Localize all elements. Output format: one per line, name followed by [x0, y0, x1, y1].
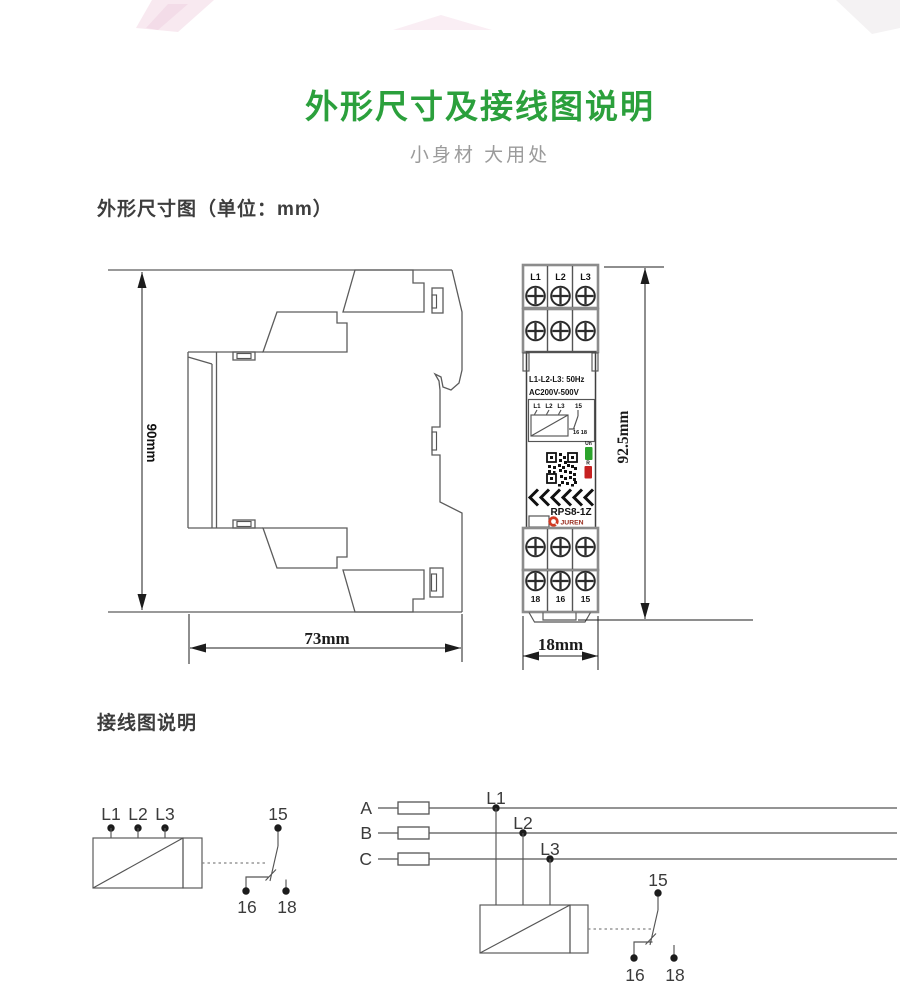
deco-shape	[836, 0, 900, 34]
wiring-diagram-simple: L1 L2 L3 15 16 18	[93, 804, 297, 917]
fuse-icon	[398, 827, 429, 839]
screw-terminal-icon	[551, 538, 570, 557]
mini-label: 15	[575, 403, 582, 410]
arrow-up-icon	[138, 272, 147, 288]
mini-label: 16 18	[573, 430, 587, 436]
mini-device-diagonal	[531, 415, 568, 436]
screw-terminal-icon	[526, 572, 545, 591]
input-label: L2	[128, 804, 147, 824]
junction-dot	[654, 889, 661, 896]
label-window	[529, 516, 549, 527]
side-bottom-wedge	[263, 528, 347, 568]
junction-dot	[242, 887, 249, 894]
device-mini-schematic: L1 L2 L3 15 16 18	[529, 400, 595, 442]
phase-lines	[378, 808, 897, 859]
contact-label-18: 18	[665, 965, 684, 985]
phase-label: A	[360, 798, 372, 818]
chevron-marks	[530, 490, 593, 506]
phase-label: B	[360, 823, 372, 843]
side-top-wedge	[263, 312, 347, 352]
arrow-left-icon	[523, 652, 539, 661]
led-red	[585, 466, 593, 479]
contact-label-16: 16	[237, 897, 256, 917]
contact-label-15: 15	[648, 870, 667, 890]
arrow-left-icon	[190, 644, 206, 653]
front-view-drawing: L1 L2 L3 L1-L2-L3: 50Hz AC200V-500V L1 L…	[523, 265, 598, 622]
technical-drawing-canvas: 90mm 73mm L1 L2 L3 L1-L2-L3: 50Hz	[0, 0, 900, 1001]
mini-label: L1	[533, 403, 541, 410]
contact-label-15: 15	[268, 804, 287, 824]
screw-terminal-icon	[576, 287, 595, 306]
side-bottom-cover	[343, 570, 424, 612]
mini-label: L2	[545, 403, 553, 410]
terminal-label: L2	[555, 272, 566, 282]
din-clip-slot	[432, 432, 437, 450]
brand-name: JUREN	[561, 520, 584, 527]
screw-terminal-icon	[576, 322, 595, 341]
contact-label-18: 18	[277, 897, 296, 917]
mini-relay-contact	[569, 410, 578, 429]
arrow-right-icon	[445, 644, 461, 653]
front-width-dimension-label: 18mm	[538, 635, 583, 654]
relay-output-section	[570, 905, 588, 953]
product-dimension-page: 外形尺寸及接线图说明 小身材 大用处 外形尺寸图（单位：mm） 接线图说明	[0, 0, 900, 1001]
junction-dot	[282, 887, 289, 894]
side-view-drawing	[108, 270, 462, 612]
front-height-dimension-lines	[578, 267, 753, 620]
contact-lines	[246, 832, 286, 892]
side-front-face	[188, 352, 263, 528]
side-top-cover	[343, 270, 424, 312]
front-height-dimension-label: 92.5mm	[615, 410, 632, 463]
relay-contact-symbol: 15 16 18	[625, 870, 684, 985]
junction-dot	[630, 954, 637, 961]
rating-text: L1-L2-L3: 50Hz	[529, 375, 585, 384]
fuse-icon	[398, 802, 429, 814]
screw-terminal-icon	[576, 572, 595, 591]
screw-terminal-icon	[576, 538, 595, 557]
back-slot-top	[432, 288, 443, 313]
screw-terminal-icon	[551, 572, 570, 591]
phase-label: C	[359, 849, 372, 869]
height-dimension-label: 90mm	[144, 423, 159, 462]
junction-dot	[274, 824, 281, 831]
screw-terminal-icon	[551, 322, 570, 341]
relay-contact-symbol: 15 16 18	[237, 804, 296, 917]
top-decoration	[136, 0, 900, 34]
terminal-label: 16	[556, 594, 566, 604]
screw-terminal-icon	[526, 287, 545, 306]
terminal-label: L1	[530, 272, 541, 282]
width-dimension-label: 73mm	[304, 629, 349, 648]
model-label: RPS8-1Z	[550, 507, 591, 518]
front-clip-tab-bottom-inner	[237, 522, 251, 527]
screw-terminal-icon	[551, 287, 570, 306]
contact-label-16: 16	[625, 965, 644, 985]
mini-label: L3	[557, 403, 565, 410]
wiring-diagram-three-phase: A B C L1 L2 L3 15 16	[359, 788, 897, 985]
mini-input-arrows	[535, 410, 562, 415]
rating-text: AC200V-500V	[529, 388, 580, 397]
qr-code	[547, 453, 577, 487]
relay-output-section	[183, 838, 202, 888]
terminal-label: 15	[581, 594, 591, 604]
front-clip-tab-top-inner	[237, 354, 251, 359]
led-r-label: R	[586, 461, 590, 467]
arrow-right-icon	[582, 652, 598, 661]
led-un-label: Un	[585, 441, 592, 447]
led-green	[585, 447, 593, 460]
input-leads	[111, 828, 165, 838]
terminal-label: 18	[531, 594, 541, 604]
arrow-down-icon	[138, 594, 147, 610]
input-label: L3	[155, 804, 174, 824]
contact-lines	[634, 897, 674, 959]
screw-terminal-icon	[526, 538, 545, 557]
screw-terminal-icon	[526, 322, 545, 341]
arrow-down-icon	[641, 603, 650, 619]
arrow-up-icon	[641, 268, 650, 284]
input-label: L1	[101, 804, 120, 824]
back-slot-bottom-inner	[432, 574, 437, 591]
deco-shape	[393, 15, 492, 30]
device-diagonal	[93, 838, 183, 888]
fuse-icon	[398, 853, 429, 865]
back-slot-top-inner	[432, 295, 437, 308]
terminal-label: L3	[580, 272, 591, 282]
device-diagonal	[480, 905, 570, 953]
junction-dot	[670, 954, 677, 961]
din-clip-bottom	[529, 613, 591, 623]
